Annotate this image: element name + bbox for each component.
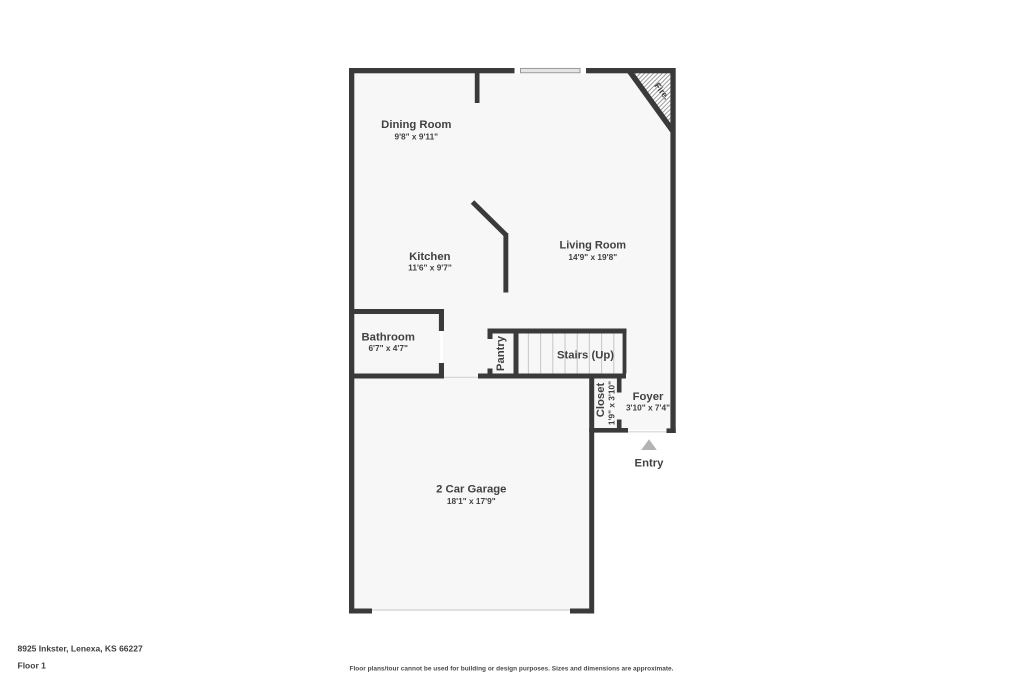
svg-text:18'1" x 17'9": 18'1" x 17'9" (447, 496, 496, 506)
svg-text:Pantry: Pantry (495, 335, 507, 371)
svg-text:Living Room: Living Room (559, 240, 626, 252)
svg-text:2 Car Garage: 2 Car Garage (436, 484, 506, 496)
svg-text:Closet: Closet (595, 383, 607, 418)
svg-text:6'7" x 4'7": 6'7" x 4'7" (368, 343, 408, 353)
svg-text:Kitchen: Kitchen (409, 251, 451, 263)
svg-text:Bathroom: Bathroom (362, 332, 415, 344)
svg-text:11'6" x 9'7": 11'6" x 9'7" (408, 263, 452, 273)
svg-text:14'9" x 19'8": 14'9" x 19'8" (568, 252, 617, 262)
svg-text:Floor 1: Floor 1 (18, 660, 47, 670)
svg-text:Foyer: Foyer (633, 391, 664, 403)
svg-text:3'10" x 7'4": 3'10" x 7'4" (626, 403, 670, 413)
svg-text:Stairs (Up): Stairs (Up) (557, 349, 614, 361)
svg-text:Dining Room: Dining Room (381, 119, 451, 131)
svg-text:9'8" x 9'11": 9'8" x 9'11" (394, 132, 438, 142)
svg-text:8925 Inkster, Lenexa, KS 66227: 8925 Inkster, Lenexa, KS 66227 (18, 644, 143, 654)
svg-text:Entry: Entry (635, 458, 665, 470)
svg-text:Floor plans/tour cannot be use: Floor plans/tour cannot be used for buil… (350, 666, 674, 673)
svg-text:1'9" x 3'10": 1'9" x 3'10" (607, 381, 617, 425)
